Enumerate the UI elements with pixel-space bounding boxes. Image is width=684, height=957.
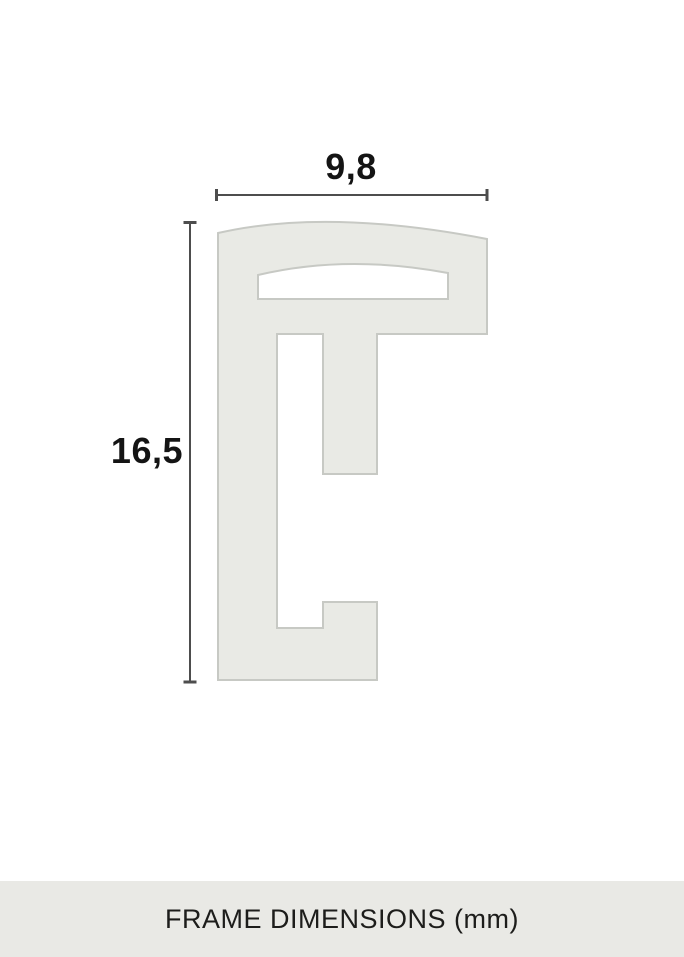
- footer-title: FRAME DIMENSIONS (mm): [165, 904, 519, 935]
- height-dimension-line: [184, 223, 197, 683]
- frame-profile-diagram: 9,8 16,5 FRAME DIMENSIONS (mm): [0, 0, 684, 957]
- height-dimension-label: 16,5: [111, 433, 183, 469]
- footer-bar: FRAME DIMENSIONS (mm): [0, 881, 684, 957]
- width-dimension-line: [217, 189, 488, 201]
- frame-profile-shape: [218, 222, 487, 680]
- profile-cross-section-drawing: [0, 0, 684, 957]
- width-dimension-label: 9,8: [325, 149, 377, 185]
